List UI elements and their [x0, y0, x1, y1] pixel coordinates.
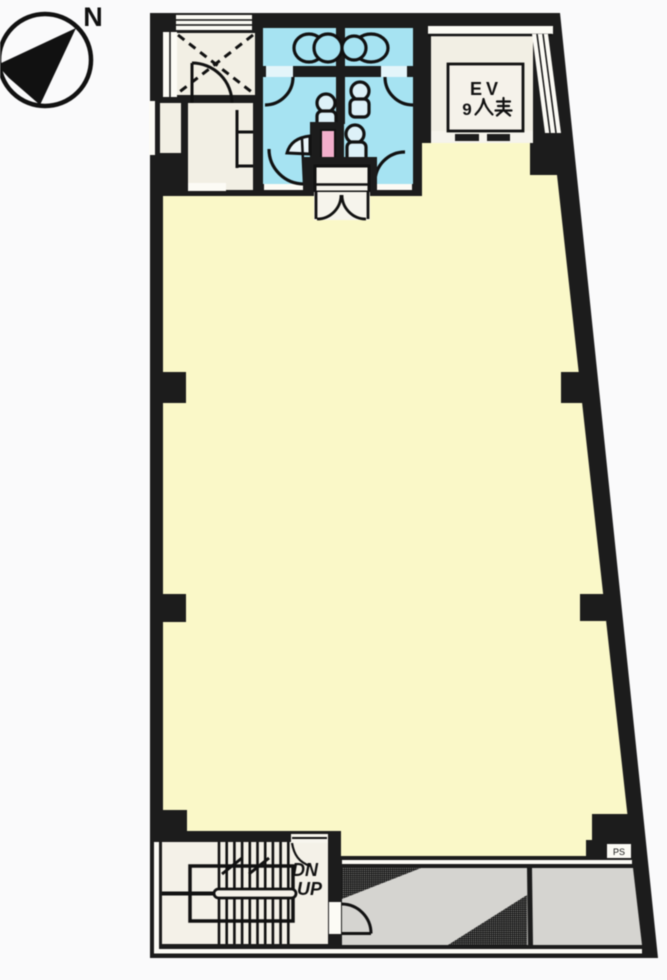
svg-text:EV: EV	[470, 79, 502, 99]
svg-text:DN: DN	[292, 860, 319, 880]
svg-text:UP: UP	[297, 879, 323, 899]
svg-text:PS: PS	[613, 847, 625, 857]
svg-text:9: 9	[462, 100, 471, 119]
svg-text:N: N	[83, 2, 103, 32]
